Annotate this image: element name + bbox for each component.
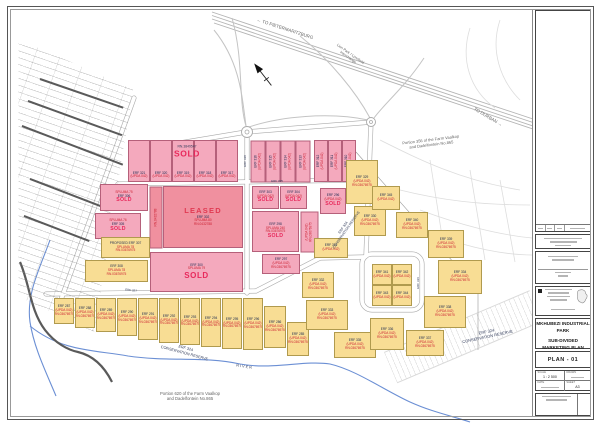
map-label-line: R I V E R bbox=[236, 363, 252, 370]
map-label-line: ERF 324 bbox=[328, 208, 357, 247]
map-label-line: SOLD bbox=[174, 149, 200, 160]
map-label: TO DURBAN → bbox=[473, 106, 503, 127]
map-label: ERF 325 bbox=[271, 180, 283, 184]
date-label: DATE bbox=[538, 382, 563, 385]
map-label-line: ← TO PIETERMARITZBURG bbox=[256, 17, 314, 41]
map-label: ERF 324CONSERVATION RESERVE bbox=[461, 324, 513, 344]
plan-type-title: SUB-DIVIDED MARKETING PLAN bbox=[536, 338, 590, 352]
map-label-line: ERF 326 bbox=[417, 277, 421, 289]
client-box bbox=[535, 234, 591, 249]
map-label: Portion 356 of the Farm Vaalkopand Dadel… bbox=[402, 134, 460, 151]
map-label: ERF 327 bbox=[125, 289, 137, 294]
logo-square-icon bbox=[538, 289, 542, 293]
map-label: Portion 620 of the Farm Vaalkopand Dadel… bbox=[160, 391, 220, 402]
africa-map-icon bbox=[575, 289, 588, 305]
revision-strip bbox=[536, 224, 590, 231]
map-label: ERF 324CONSERVATION RESERVE bbox=[328, 208, 361, 250]
map-label-line: ERF 325 bbox=[271, 180, 283, 184]
map-label: Lion Park / LynnfieldInterchange bbox=[333, 43, 365, 69]
map-label: ← TO PIETERMARITZBURG bbox=[256, 17, 314, 41]
map-label: ERF 328 bbox=[244, 155, 248, 167]
sheet-value: A3 bbox=[566, 385, 588, 390]
logo-box bbox=[535, 286, 591, 316]
consultant-box bbox=[535, 251, 591, 284]
title-block: MKHUBEZI INDUSTRIAL PARK SUB-DIVIDED MAR… bbox=[532, 10, 591, 416]
plan-number: PLAN - 01 bbox=[548, 357, 578, 363]
scale-value: 1 : 2 500 bbox=[538, 375, 563, 380]
drawing-title-box: MKHUBEZI INDUSTRIAL PARK SUB-DIVIDED MAR… bbox=[535, 318, 591, 349]
plan-sheet: ERF 321(UPDA 042)ERF 320(UPDA 042)ERF 31… bbox=[0, 0, 600, 425]
footer-box bbox=[535, 393, 591, 416]
map-label: ERF 324CONSERVATION RESERVE bbox=[160, 340, 210, 362]
map-label-layer: ← TO PIETERMARITZBURGLion Park / Lynnfie… bbox=[0, 0, 600, 425]
map-label: R I V E R bbox=[236, 363, 252, 370]
notes-box bbox=[535, 10, 591, 232]
map-label-line: ERF 328 bbox=[244, 155, 248, 167]
drawn-label: DRAWN bbox=[566, 372, 588, 375]
park-title: MKHUBEZI INDUSTRIAL PARK bbox=[536, 321, 590, 335]
map-label: ERF 326 bbox=[417, 277, 421, 289]
map-label: RN.3849547SOLD bbox=[174, 145, 200, 160]
map-label-line: TO DURBAN → bbox=[473, 106, 503, 127]
map-label-line: and Dadelfontein No.865 bbox=[160, 396, 220, 401]
scale-box: SCALE 1 : 2 500 DRAWN DATE SHEET A3 bbox=[535, 370, 591, 391]
plan-number-box: PLAN - 01 bbox=[535, 351, 591, 368]
map-label-line: ERF 327 bbox=[125, 289, 137, 294]
